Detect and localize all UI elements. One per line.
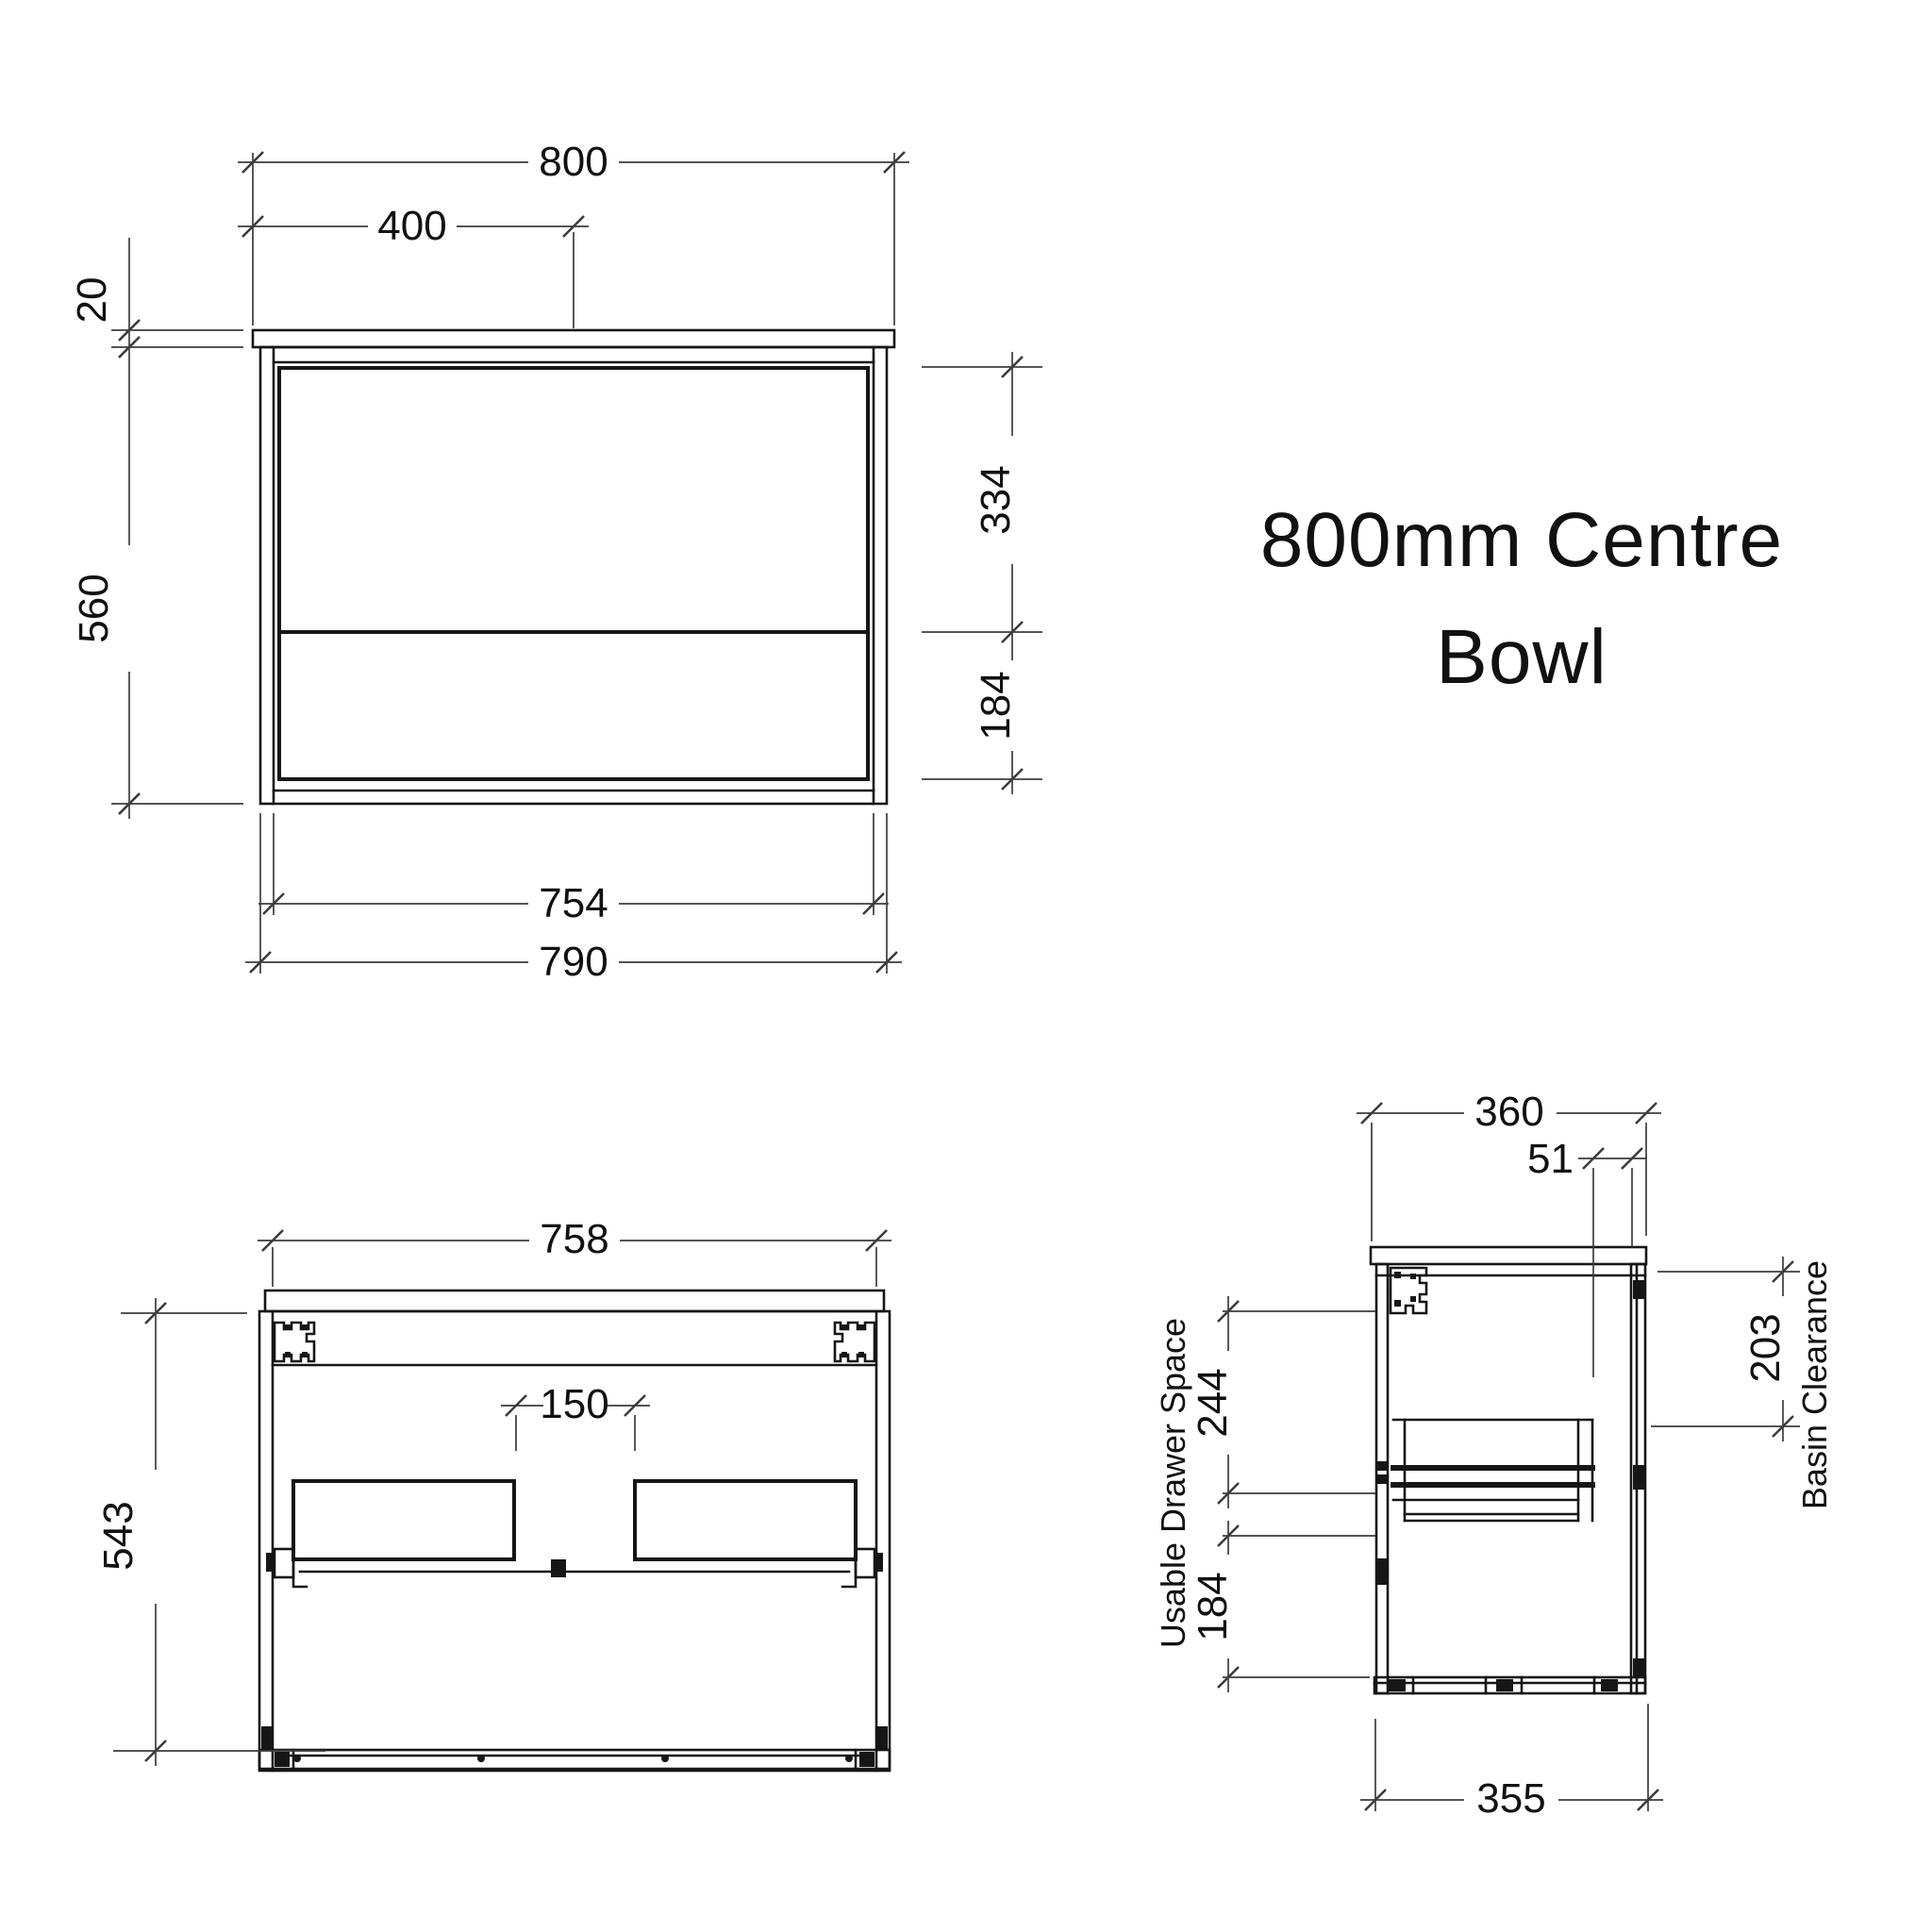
right-drawer-box [635,1481,856,1559]
usable-drawer-space-label: Usable Drawer Space [1154,1318,1192,1648]
carcass-outline [260,347,887,804]
left-bottom-clip [261,1726,273,1749]
left-runner-bracket [275,1549,293,1577]
front-internal-width-dim: 754 [539,880,608,926]
internal-view: 758 543 150 [95,1216,891,1771]
side-cabinet-geometry [1371,1247,1646,1693]
internal-height-dim: 543 [95,1501,142,1570]
vanity-spec-sheet: 800 400 20 560 334 184 754 790 800mm Cen… [0,0,1932,1932]
back-runner-clip [1376,1461,1389,1471]
wall-bracket-left-icon [275,1323,314,1361]
page-title-line1: 800mm Centre [1260,497,1783,583]
front-height-dim: 560 [71,574,117,642]
internal-centre-gap-dim: 150 [540,1381,608,1427]
title-block: 800mm Centre Bowl [1260,497,1783,700]
centre-connector-clip [551,1559,566,1577]
front-cabinet-geometry [253,330,894,804]
technical-drawing-canvas: 800 400 20 560 334 184 754 790 800mm Cen… [0,0,1932,1932]
right-runner-bracket [856,1549,874,1577]
screw-hole [845,1755,853,1762]
side-basin-clearance-dim: 203 [1742,1313,1789,1382]
screw-hole [293,1755,301,1762]
benchtop [265,1291,884,1311]
basin-clearance-label: Basin Clearance [1795,1260,1834,1509]
front-centre-dim: 400 [377,203,446,249]
front-bottom-drawer-dim: 184 [973,671,1019,740]
back-runner-clip [1376,1474,1389,1484]
side-view: 360 51 203 Basin Clearance 244 184 Usabl… [1154,1089,1834,1822]
front-top-clip [1633,1280,1645,1299]
page-title-line2: Bowl [1436,614,1607,700]
left-drawer-box [293,1481,514,1559]
drawer-fronts-panel [279,368,868,779]
bottom-clip [1389,1679,1406,1691]
bottom-end-cap-right [859,1752,874,1767]
front-bottom-clip [1633,1658,1645,1677]
side-usable-drawer-dim: 244 [1190,1368,1236,1437]
side-waste-offset-dim: 51 [1527,1136,1574,1182]
back-lower-clip [1376,1558,1389,1585]
side-lower-space-dim: 184 [1190,1572,1236,1641]
front-overall-width-dim: 800 [539,139,608,185]
internal-cabinet-geometry [259,1291,890,1771]
front-mid-clip [1633,1465,1645,1490]
side-depth-dim: 360 [1474,1089,1543,1135]
rail-end-left [293,1559,307,1587]
front-carcass-width-dim: 790 [539,939,608,985]
wall-bracket-right-icon [835,1323,874,1361]
front-view: 800 400 20 560 334 184 754 790 [69,139,1042,985]
screw-hole [477,1755,485,1762]
right-bottom-clip [876,1726,888,1749]
side-bottom-depth-dim: 355 [1476,1775,1545,1822]
benchtop [253,330,894,347]
front-benchtop-thickness-dim: 20 [69,277,115,324]
bottom-clip [1496,1679,1513,1691]
rail-end-right [842,1559,856,1587]
side-dimensions: 360 51 203 Basin Clearance 244 184 Usabl… [1154,1089,1834,1822]
bottom-clip [1601,1679,1618,1691]
screw-hole [661,1755,669,1762]
benchtop [1371,1247,1646,1264]
bottom-panel [259,1750,890,1769]
left-runner-clip [266,1553,275,1572]
internal-dimensions: 758 543 150 [95,1216,891,1766]
bottom-end-cap-left [275,1752,290,1767]
internal-width-dim: 758 [540,1216,608,1262]
drawer-box-section [1393,1420,1592,1521]
front-dimensions: 800 400 20 560 334 184 754 790 [69,139,1042,985]
front-top-drawer-dim: 334 [973,465,1019,534]
right-runner-clip [874,1553,883,1572]
